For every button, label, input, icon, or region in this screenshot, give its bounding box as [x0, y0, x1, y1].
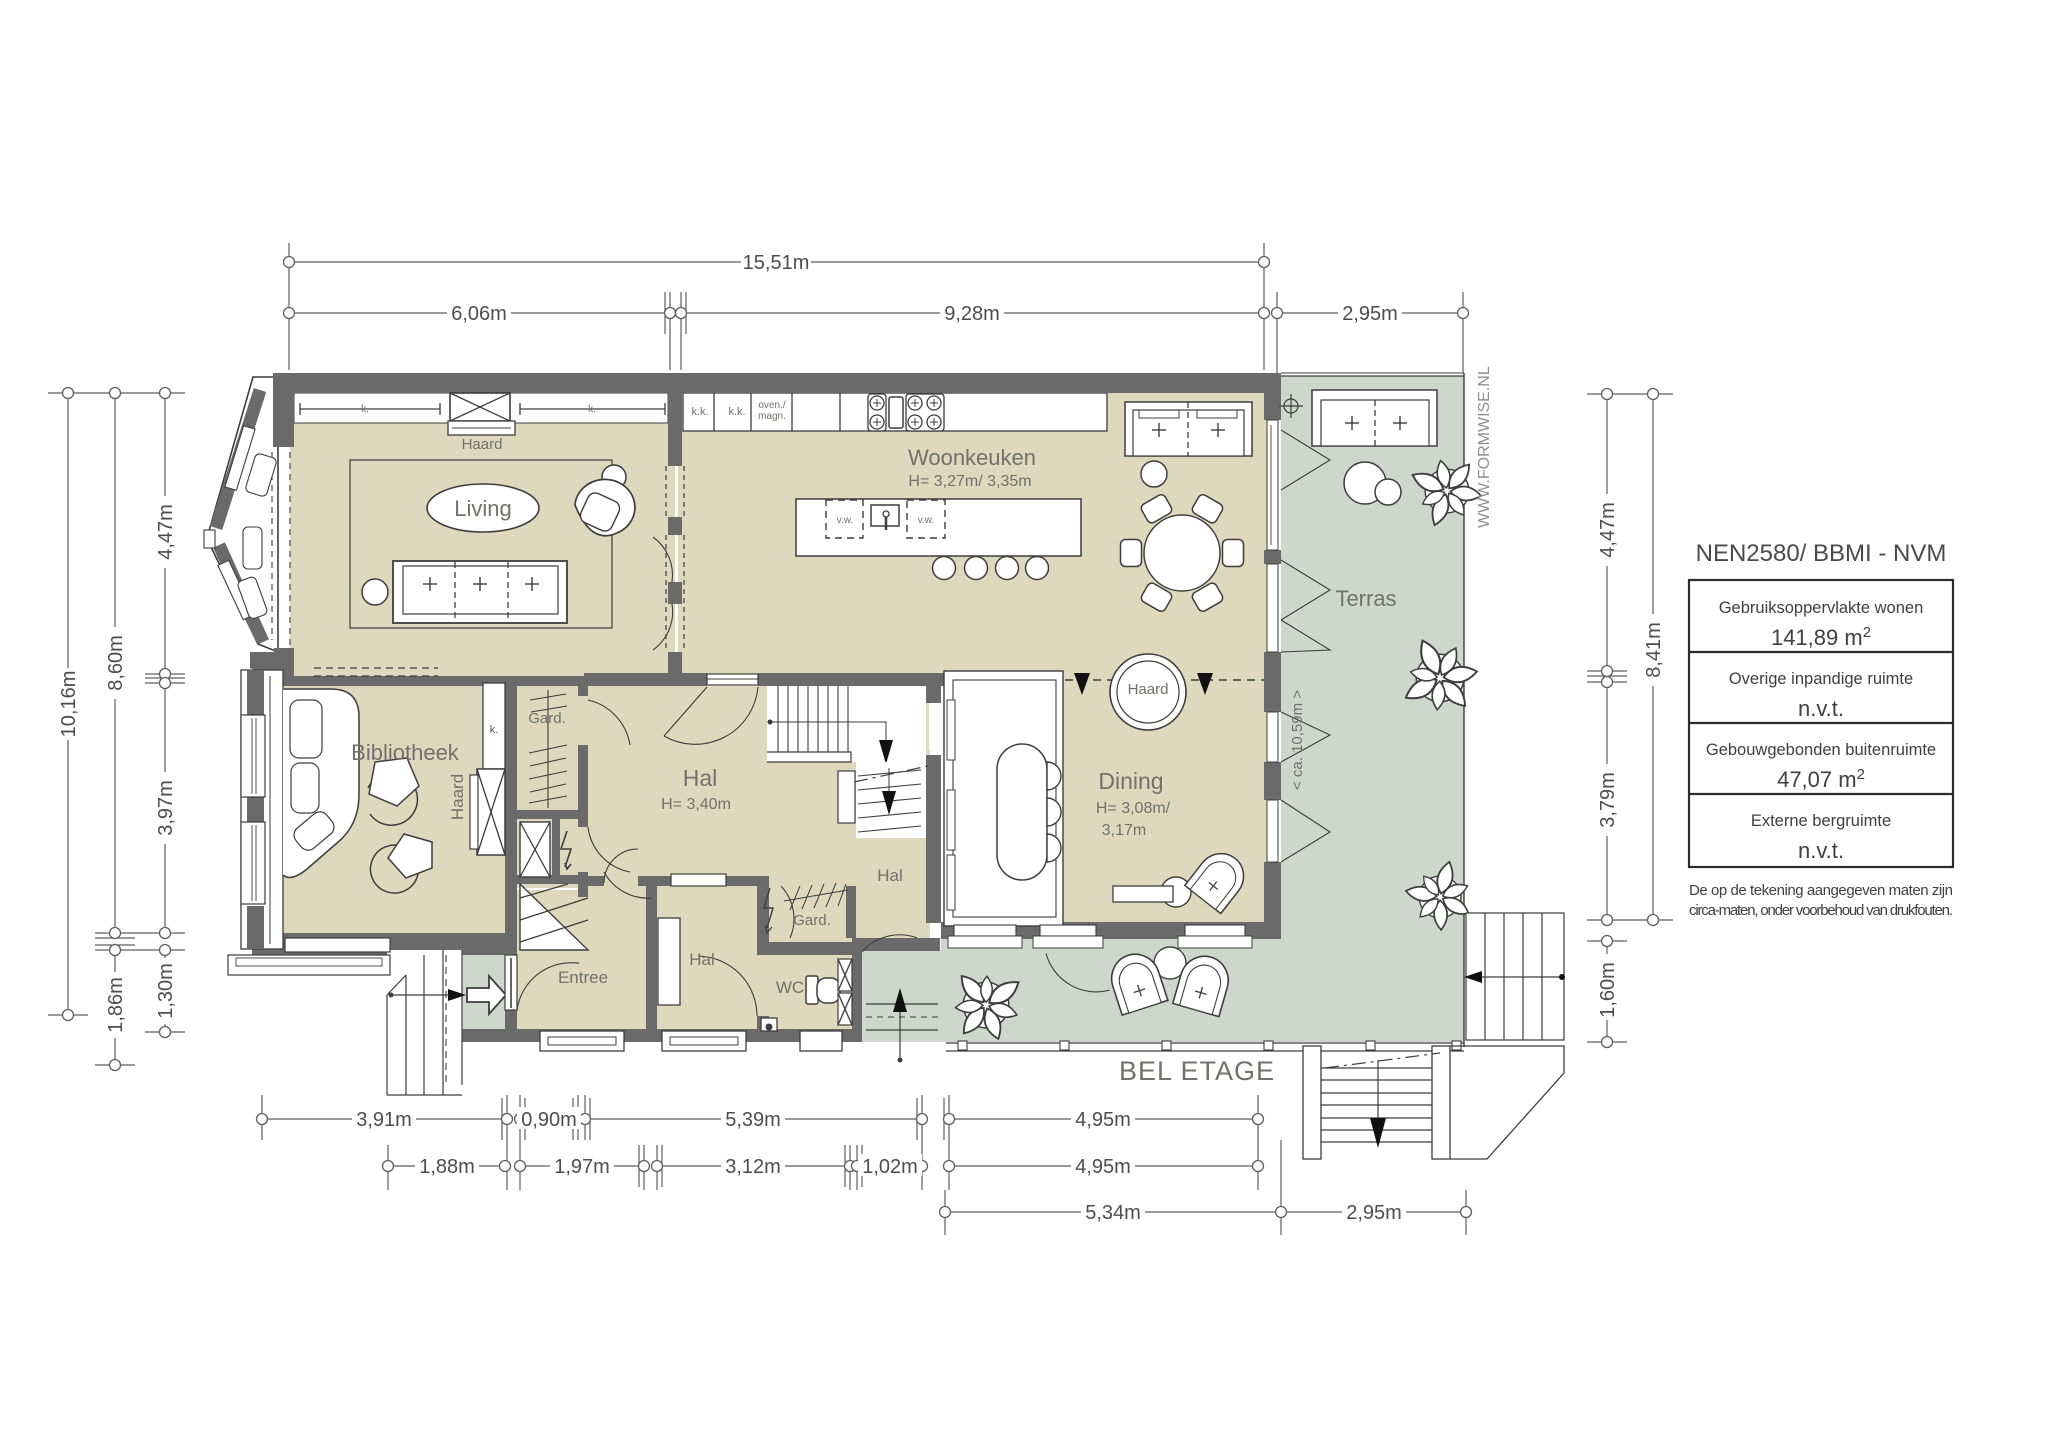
svg-text:Bibliotheek: Bibliotheek — [351, 740, 460, 765]
svg-text:4,47m: 4,47m — [1597, 502, 1619, 558]
svg-text:141,89 m2: 141,89 m2 — [1771, 624, 1871, 650]
svg-text:v.w.: v.w. — [918, 515, 934, 526]
svg-text:0,90m: 0,90m — [521, 1109, 577, 1131]
svg-text:1,88m: 1,88m — [419, 1156, 475, 1178]
svg-text:H= 3,27m/ 3,35m: H= 3,27m/ 3,35m — [908, 473, 1031, 490]
svg-text:Entree: Entree — [558, 968, 608, 987]
svg-text:n.v.t.: n.v.t. — [1798, 838, 1844, 863]
svg-text:Gebruiksoppervlakte wonen: Gebruiksoppervlakte wonen — [1719, 599, 1924, 617]
svg-text:NEN2580/ BBMI - NVM: NEN2580/ BBMI - NVM — [1696, 540, 1947, 567]
svg-text:1,02m: 1,02m — [862, 1156, 918, 1178]
svg-text:H= 3,40m: H= 3,40m — [661, 796, 731, 813]
svg-text:Gebouwgebonden buitenruimte: Gebouwgebonden buitenruimte — [1706, 741, 1936, 759]
svg-text:6,06m: 6,06m — [451, 303, 507, 325]
svg-text:Woonkeuken: Woonkeuken — [908, 445, 1036, 470]
svg-text:3,12m: 3,12m — [725, 1156, 781, 1178]
svg-text:Haard: Haard — [1128, 681, 1169, 698]
svg-text:Hal: Hal — [689, 950, 715, 969]
svg-text:Externe bergruimte: Externe bergruimte — [1751, 812, 1891, 830]
svg-text:BEL ETAGE: BEL ETAGE — [1119, 1056, 1275, 1086]
svg-text:< ca. 10,59m >: < ca. 10,59m > — [1289, 690, 1306, 790]
svg-text:3,97m: 3,97m — [155, 780, 177, 836]
svg-text:De op de tekening aangegeven m: De op de tekening aangegeven maten zijn — [1689, 882, 1953, 899]
svg-text:Terras: Terras — [1335, 586, 1396, 611]
svg-text:Haard: Haard — [462, 436, 503, 453]
svg-text:Hal: Hal — [683, 765, 718, 791]
svg-text:9,28m: 9,28m — [944, 303, 1000, 325]
svg-text:4,47m: 4,47m — [155, 504, 177, 560]
svg-text:1,97m: 1,97m — [554, 1156, 610, 1178]
svg-text:circa-maten, onder voorbehoud: circa-maten, onder voorbehoud van drukfo… — [1689, 902, 1953, 919]
svg-text:k.: k. — [490, 724, 499, 736]
svg-text:magn.: magn. — [758, 411, 786, 422]
svg-text:Gard.: Gard. — [793, 912, 831, 929]
svg-text:n.v.t.: n.v.t. — [1798, 696, 1844, 721]
svg-text:1,60m: 1,60m — [1597, 962, 1619, 1018]
svg-text:3,91m: 3,91m — [356, 1109, 412, 1131]
svg-text:oven./: oven./ — [758, 400, 785, 411]
svg-text:5,39m: 5,39m — [725, 1109, 781, 1131]
svg-text:Overige inpandige ruimte: Overige inpandige ruimte — [1729, 670, 1913, 688]
svg-text:v.w.: v.w. — [837, 515, 853, 526]
svg-text:Haard: Haard — [448, 774, 467, 820]
svg-text:k.k.: k.k. — [728, 406, 745, 418]
svg-text:8,41m: 8,41m — [1643, 622, 1665, 678]
svg-text:15,51m: 15,51m — [743, 252, 810, 274]
svg-text:WC: WC — [776, 978, 804, 997]
svg-text:1,30m: 1,30m — [155, 963, 177, 1019]
svg-text:2,95m: 2,95m — [1346, 1202, 1402, 1224]
svg-text:5,34m: 5,34m — [1085, 1202, 1141, 1224]
svg-text:H= 3,08m/: H= 3,08m/ — [1096, 800, 1171, 817]
svg-text:k.: k. — [588, 404, 596, 415]
svg-text:3,17m: 3,17m — [1102, 822, 1146, 839]
svg-text:1,86m: 1,86m — [105, 977, 127, 1033]
svg-text:2,95m: 2,95m — [1342, 303, 1398, 325]
svg-text:Living: Living — [454, 496, 511, 521]
svg-text:k.: k. — [361, 404, 369, 415]
svg-text:WWW.FORMWISE.NL: WWW.FORMWISE.NL — [1476, 366, 1493, 528]
svg-text:Hal: Hal — [877, 866, 903, 885]
svg-text:3,79m: 3,79m — [1597, 772, 1619, 828]
svg-text:8,60m: 8,60m — [105, 635, 127, 691]
svg-text:10,16m: 10,16m — [58, 671, 80, 738]
svg-text:4,95m: 4,95m — [1075, 1109, 1131, 1131]
svg-text:47,07 m2: 47,07 m2 — [1777, 766, 1865, 792]
svg-text:4,95m: 4,95m — [1075, 1156, 1131, 1178]
svg-text:Dining: Dining — [1098, 768, 1163, 794]
svg-text:k.k.: k.k. — [691, 406, 708, 418]
svg-text:Gard.: Gard. — [528, 710, 566, 727]
